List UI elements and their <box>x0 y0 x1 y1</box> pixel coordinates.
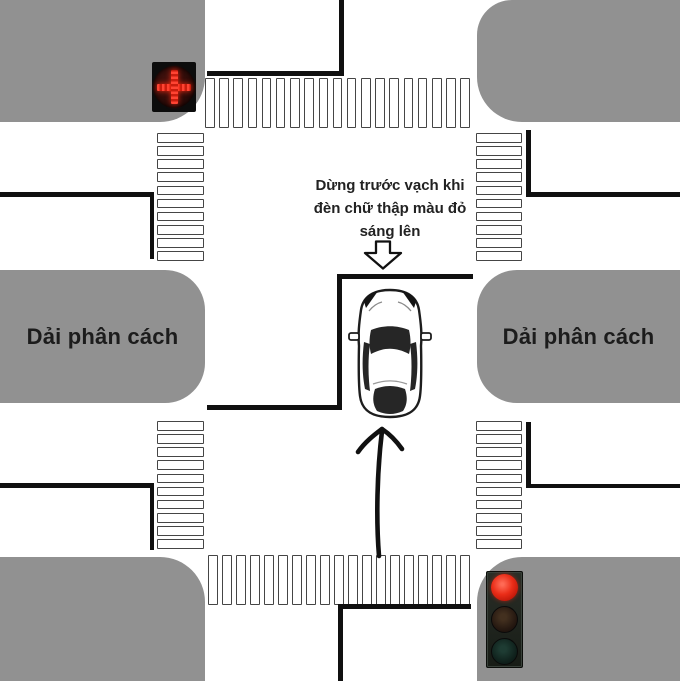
crosswalk-stripe <box>476 526 522 536</box>
crosswalk-stripe <box>334 555 344 605</box>
crosswalk-stripe <box>333 78 343 128</box>
crosswalk-stripe <box>362 555 372 605</box>
crosswalk-stripe <box>319 78 329 128</box>
median-left-label: Dải phân cách <box>27 324 179 350</box>
crosswalk-stripe <box>157 238 204 248</box>
crosswalk-stripe <box>157 526 204 536</box>
crosswalk-stripe <box>222 555 232 605</box>
stop-line-bottom <box>338 604 471 609</box>
traffic-light-green-lamp <box>491 638 518 665</box>
crosswalk-stripe <box>404 555 414 605</box>
crosswalk-stripe <box>432 555 442 605</box>
instruction-line-1: Dừng trước vạch khi <box>285 174 495 197</box>
crosswalk-stripe <box>250 555 260 605</box>
median-strip-right: Dải phân cách <box>477 270 680 403</box>
crosswalk-stripe <box>476 251 522 261</box>
crosswalk-stripe <box>476 421 522 431</box>
crosswalk-left-north <box>157 133 204 261</box>
crosswalk-left-south <box>157 421 204 549</box>
crosswalk-stripe <box>347 78 357 128</box>
lane-divider-bottom <box>338 604 343 681</box>
building-block-top-right <box>477 0 680 122</box>
traffic-light-amber-lamp <box>491 606 518 633</box>
median-right-label: Dải phân cách <box>503 324 655 350</box>
traffic-light-icon <box>486 571 523 668</box>
crosswalk-stripe <box>262 78 272 128</box>
crosswalk-stripe <box>157 447 204 457</box>
crosswalk-stripe <box>157 146 204 156</box>
crosswalk-stripe <box>236 555 246 605</box>
crosswalk-stripe <box>476 159 522 169</box>
crosswalk-stripe <box>476 487 522 497</box>
cross-bar-vertical <box>171 70 178 104</box>
crosswalk-stripe <box>390 555 400 605</box>
crosswalk-stripe <box>157 172 204 182</box>
crosswalk-stripe <box>418 78 428 128</box>
lane-divider-median <box>337 274 342 409</box>
stop-line-median-north <box>337 274 473 279</box>
crosswalk-stripe <box>264 555 274 605</box>
crosswalk-stripe <box>476 434 522 444</box>
crosswalk-stripe <box>460 555 470 605</box>
crosswalk-stripe <box>276 78 286 128</box>
down-arrow-icon <box>362 240 404 270</box>
crosswalk-stripe <box>219 78 229 128</box>
crosswalk-stripe <box>476 513 522 523</box>
crosswalk-stripe <box>157 421 204 431</box>
lane-divider-right-north <box>526 192 680 197</box>
lane-divider-left-south <box>0 483 152 488</box>
crosswalk-stripe <box>446 78 456 128</box>
instruction-text: Dừng trước vạch khi đèn chữ thập màu đỏ … <box>285 174 495 243</box>
crosswalk-stripe <box>476 146 522 156</box>
stop-line-right-north <box>526 130 531 196</box>
instruction-line-2: đèn chữ thập màu đỏ <box>285 197 495 220</box>
stop-line-median-south <box>207 405 342 410</box>
crosswalk-stripe <box>157 212 204 222</box>
crosswalk-stripe <box>233 78 243 128</box>
traffic-light-red-lamp <box>491 574 518 601</box>
crosswalk-stripe <box>476 500 522 510</box>
stop-line-right-south <box>526 422 531 488</box>
crosswalk-stripe <box>476 539 522 549</box>
crosswalk-stripe <box>476 460 522 470</box>
crosswalk-stripe <box>476 447 522 457</box>
red-cross-signal-icon <box>152 62 196 112</box>
crosswalk-stripe <box>157 251 204 261</box>
crosswalk-stripe <box>278 555 288 605</box>
crosswalk-stripe <box>290 78 300 128</box>
crosswalk-stripe <box>306 555 316 605</box>
crosswalk-top <box>205 78 470 128</box>
crosswalk-stripe <box>157 434 204 444</box>
crosswalk-stripe <box>157 133 204 143</box>
crosswalk-stripe <box>476 474 522 484</box>
crosswalk-right-south <box>476 421 522 549</box>
crosswalk-stripe <box>157 159 204 169</box>
lane-divider-right-south <box>526 484 680 489</box>
car-icon <box>347 286 433 421</box>
crosswalk-stripe <box>376 555 386 605</box>
crosswalk-stripe <box>292 555 302 605</box>
crosswalk-stripe <box>157 500 204 510</box>
crosswalk-stripe <box>418 555 428 605</box>
crosswalk-stripe <box>157 487 204 497</box>
crosswalk-stripe <box>375 78 385 128</box>
crosswalk-stripe <box>460 78 470 128</box>
crosswalk-stripe <box>432 78 442 128</box>
crosswalk-stripe <box>248 78 258 128</box>
traffic-rule-diagram: Dải phân cách Dải phân cách Dừng trước v… <box>0 0 680 681</box>
crosswalk-stripe <box>157 225 204 235</box>
crosswalk-stripe <box>157 199 204 209</box>
building-block-bottom-left <box>0 557 205 681</box>
crosswalk-bottom <box>208 555 470 605</box>
median-strip-left: Dải phân cách <box>0 270 205 403</box>
crosswalk-stripe <box>389 78 399 128</box>
crosswalk-stripe <box>476 133 522 143</box>
crosswalk-stripe <box>446 555 456 605</box>
crosswalk-stripe <box>157 539 204 549</box>
crosswalk-stripe <box>157 186 204 196</box>
up-arrow-icon <box>352 424 408 558</box>
crosswalk-stripe <box>157 474 204 484</box>
crosswalk-stripe <box>320 555 330 605</box>
crosswalk-stripe <box>157 513 204 523</box>
stop-line-top <box>207 71 344 76</box>
lane-divider-left-north <box>0 192 152 197</box>
crosswalk-stripe <box>157 460 204 470</box>
crosswalk-stripe <box>404 78 414 128</box>
crosswalk-stripe <box>208 555 218 605</box>
crosswalk-stripe <box>361 78 371 128</box>
crosswalk-stripe <box>348 555 358 605</box>
stop-line-left-south <box>150 483 155 550</box>
crosswalk-stripe <box>304 78 314 128</box>
stop-line-left-north <box>150 192 155 259</box>
lane-divider-top <box>339 0 344 74</box>
crosswalk-stripe <box>205 78 215 128</box>
